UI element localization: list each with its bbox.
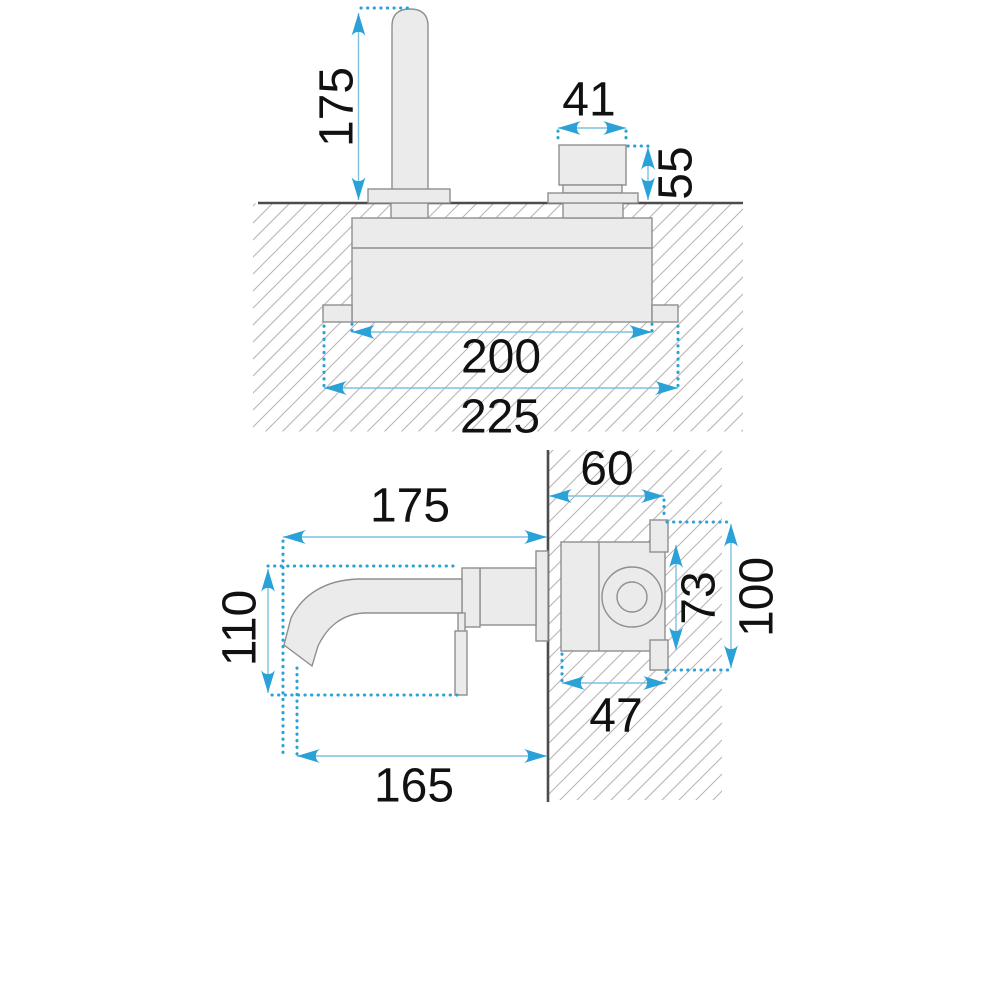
front-view: 175 41 55 200 225 xyxy=(253,8,743,444)
handle-escutcheon xyxy=(548,193,638,203)
dim-label-valve-body-height: 73 xyxy=(673,571,726,624)
dim-label-overall-height: 100 xyxy=(731,557,784,637)
dim-label-body-width: 200 xyxy=(461,331,541,384)
dim-label-spout-height: 175 xyxy=(311,67,364,147)
aerator-rod-lower xyxy=(455,631,467,695)
drawing-canvas: 175 41 55 200 225 xyxy=(0,0,1000,1000)
dim-label-overall-width: 225 xyxy=(460,391,540,444)
mounting-tab-bottom xyxy=(650,640,668,670)
aerator-rod-upper xyxy=(458,613,465,632)
spout-wall-stub xyxy=(391,203,428,218)
dim-label-spout-drop: 110 xyxy=(214,590,267,667)
spout-mount-cylinder xyxy=(480,568,536,625)
side-view: 175 60 110 73 100 47 165 xyxy=(214,443,784,813)
handle-wall-stub xyxy=(563,203,623,218)
handle-stem xyxy=(563,185,622,193)
spout-curved-tube xyxy=(284,579,462,666)
dim-label-valve-body-depth: 47 xyxy=(589,690,642,743)
faucet-dimension-drawing: 175 41 55 200 225 xyxy=(0,0,1000,1000)
concealed-body xyxy=(352,218,652,322)
valve-cartridge-inner xyxy=(617,582,647,612)
dim-label-handle-height: 55 xyxy=(650,146,703,199)
dim-label-wall-depth: 60 xyxy=(580,443,633,496)
handle-knob xyxy=(559,145,626,185)
mounting-ear-right xyxy=(652,305,678,322)
spout-escutcheon-side xyxy=(536,551,548,641)
dim-label-outlet-reach: 165 xyxy=(374,760,454,813)
mounting-tab-top xyxy=(650,520,668,552)
dim-label-spout-reach: 175 xyxy=(370,480,450,533)
spout-pipe-front xyxy=(392,9,428,191)
spout-escutcheon-front xyxy=(368,189,450,203)
mounting-ear-left xyxy=(323,305,352,322)
dim-label-handle-width: 41 xyxy=(562,74,615,127)
